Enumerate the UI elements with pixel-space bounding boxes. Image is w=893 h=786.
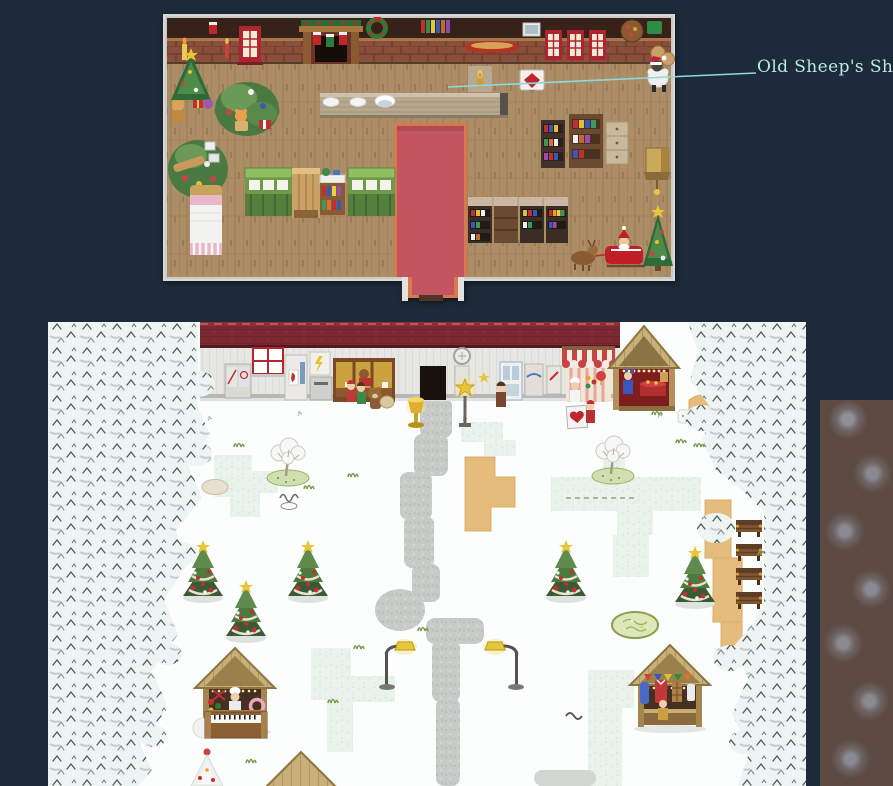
page: Old Sheep's Shop [0,0,893,786]
striped-awning-shop [562,346,617,402]
vending-machine [285,355,307,400]
bed [190,185,222,255]
hanging-stockings [313,32,347,47]
cabinet-row-lower [468,197,568,243]
heart-sign [566,405,587,428]
poster-board [225,364,251,398]
map-annotation-label: Old Sheep's Shop [757,57,893,77]
rock [202,480,228,495]
tv-decoration [523,23,540,36]
canoe-decoration [465,41,519,53]
garden-circle [612,612,658,638]
green-stall-right [348,168,395,216]
stone-slab [534,770,596,786]
gem-sign [520,70,544,94]
stocking-icon [209,22,217,34]
candle-tile [468,66,492,92]
village-map-image[interactable] [48,322,806,786]
carpet-exit-tab [402,277,464,301]
small-bookshelf [320,168,345,215]
side-texture-panel [820,400,893,786]
red-carpet [394,123,467,277]
npc-by-posters [496,382,506,408]
gift-pile-center [215,82,279,136]
red-door-window [237,26,263,65]
fireplace [299,20,363,64]
piano-stall [205,710,267,738]
counter [320,93,508,118]
interior-map-image[interactable] [163,14,675,306]
fruit-barrel [621,20,643,42]
dark-doorway [420,366,446,400]
green-stall-left [245,168,292,216]
npc-red [586,400,595,423]
red-windows [545,30,606,60]
shop-window-left [251,348,285,377]
bookshelves-upper [541,114,628,168]
round-sign [454,348,470,364]
door-panel [292,168,320,218]
